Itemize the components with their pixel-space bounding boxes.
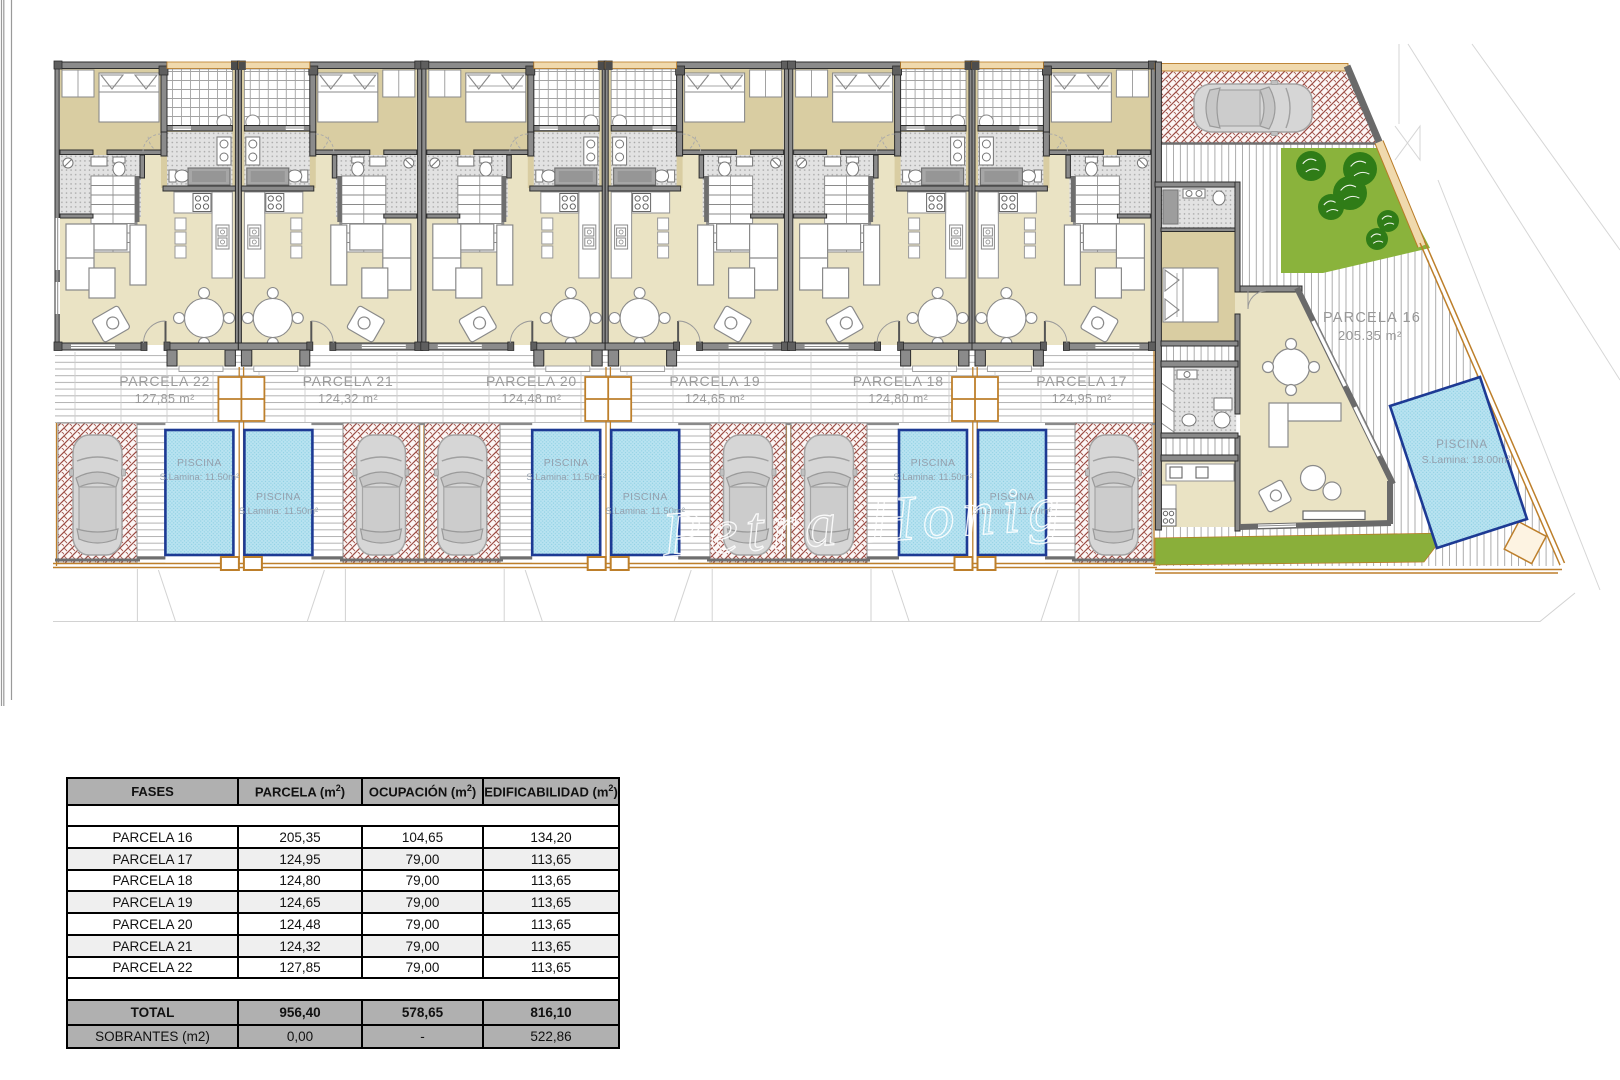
svg-text:PARCELA 22: PARCELA 22 bbox=[119, 373, 210, 389]
svg-text:S.Lamina: 11.50m²: S.Lamina: 11.50m² bbox=[526, 472, 606, 483]
svg-text:PISCINA: PISCINA bbox=[256, 491, 301, 503]
svg-text:PARCELA 16: PARCELA 16 bbox=[1323, 310, 1421, 326]
svg-text:S.Lamina: 18.00m²: S.Lamina: 18.00m² bbox=[1422, 454, 1511, 466]
svg-text:PARCELA 20: PARCELA 20 bbox=[486, 373, 577, 389]
svg-text:124,80 m²: 124,80 m² bbox=[868, 392, 928, 406]
svg-text:PISCINA: PISCINA bbox=[177, 457, 222, 469]
svg-text:127,85 m²: 127,85 m² bbox=[135, 392, 195, 406]
svg-text:PISCINA: PISCINA bbox=[911, 457, 956, 469]
svg-text:124,48 m²: 124,48 m² bbox=[502, 392, 562, 406]
svg-text:124,65 m²: 124,65 m² bbox=[685, 392, 745, 406]
svg-text:PARCELA 21: PARCELA 21 bbox=[303, 373, 394, 389]
svg-text:PARCELA 18: PARCELA 18 bbox=[853, 373, 944, 389]
svg-text:S.Lamina: 11.50m²: S.Lamina: 11.50m² bbox=[239, 506, 319, 517]
svg-text:PARCELA 19: PARCELA 19 bbox=[669, 373, 760, 389]
svg-text:PISCINA: PISCINA bbox=[544, 457, 589, 469]
svg-text:124,32 m²: 124,32 m² bbox=[318, 392, 378, 406]
svg-text:124,95 m²: 124,95 m² bbox=[1052, 392, 1112, 406]
svg-text:205.35 m²: 205.35 m² bbox=[1338, 328, 1402, 343]
svg-text:PISCINA: PISCINA bbox=[1436, 439, 1488, 451]
svg-text:S.Lamina: 11.50m²: S.Lamina: 11.50m² bbox=[160, 472, 240, 483]
svg-text:PARCELA 17: PARCELA 17 bbox=[1036, 373, 1127, 389]
